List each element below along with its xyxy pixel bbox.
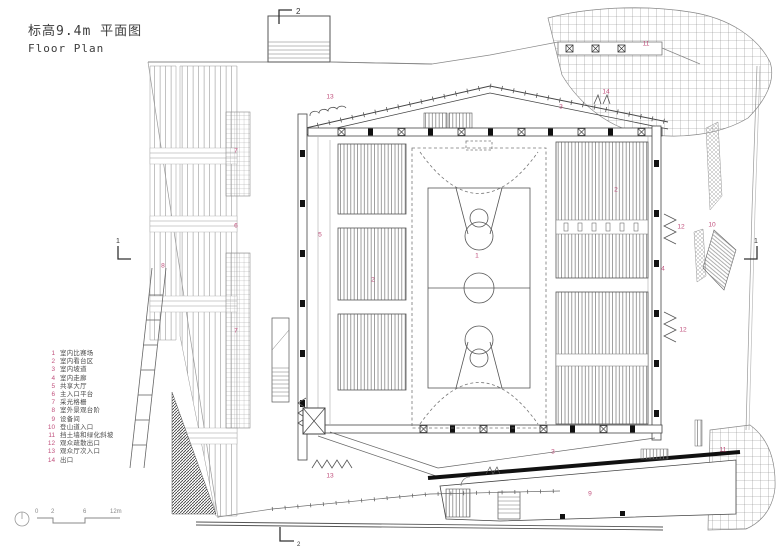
plan-area-label: 11: [720, 447, 727, 454]
legend-label: 室内坡道: [60, 366, 87, 374]
plan-area-label: 6: [234, 223, 238, 230]
plan-area-label: 5: [318, 232, 322, 239]
title-block: 标高9.4m 平面图 Floor Plan: [28, 20, 142, 55]
entry-stairs-north: [424, 113, 472, 128]
scale-tick-3: 12m: [110, 509, 122, 515]
page-title-en: Floor Plan: [28, 42, 142, 55]
basketball-court: [412, 141, 546, 428]
plan-area-label: 9: [588, 491, 592, 498]
plan-area-label: 11: [643, 41, 650, 48]
legend-item: 4室内走廊: [44, 375, 114, 383]
plan-area-label: 14: [602, 89, 609, 96]
scale-tick-2: 6: [83, 509, 87, 515]
plan-area-label: 3: [559, 104, 563, 111]
legend-label: 主入口平台: [60, 391, 93, 399]
section-marker-bottom: [280, 527, 294, 541]
legend-label: 设备间: [60, 416, 80, 424]
plan-area-label: 7: [234, 328, 238, 335]
plan-area-label: 2: [371, 277, 375, 284]
legend-item: 5共享大厅: [44, 383, 114, 391]
legend-num: 5: [44, 383, 55, 391]
legend-num: 1: [44, 350, 55, 358]
plan-area-label: 7: [234, 148, 238, 155]
exit-louver-upper: [664, 214, 676, 244]
scale-tick-0: 0: [35, 509, 39, 515]
legend-label: 观众厅次入口: [60, 448, 100, 456]
legend-label: 室内比赛场: [60, 350, 93, 358]
canopy-scallops-top: [310, 106, 346, 116]
legend-item: 3室内坡道: [44, 366, 114, 374]
exit-louver-lower: [664, 312, 676, 342]
section-number-left: 1: [116, 238, 120, 245]
legend-label: 共享大厅: [60, 383, 87, 391]
legend-num: 7: [44, 399, 55, 407]
plan-area-label: 13: [326, 94, 333, 101]
legend-num: 2: [44, 358, 55, 366]
floor-plan-page: 2 2 1 1 0 2 6 12m 标高9.4m 平面图 Floor Plan …: [0, 0, 780, 552]
landscape-steps: [130, 66, 237, 516]
legend-label: 室外景观台阶: [60, 407, 100, 415]
section-number-right: 1: [754, 238, 758, 245]
plan-area-label: 2: [614, 187, 618, 194]
legend-num: 6: [44, 391, 55, 399]
page-title-cn: 标高9.4m 平面图: [28, 20, 142, 39]
legend-item: 13观众厅次入口: [44, 448, 114, 456]
east-site-elements: [694, 122, 736, 290]
legend-item: 10登山道入口: [44, 424, 114, 432]
legend-label: 登山道入口: [60, 424, 93, 432]
legend-item: 8室外景观台阶: [44, 407, 114, 415]
section-number-top: 2: [296, 7, 301, 16]
legend-num: 12: [44, 440, 55, 448]
legend-item: 14出口: [44, 456, 114, 464]
legend-item: 6主入口平台: [44, 391, 114, 399]
floor-plan-drawing: 2 2 1 1 0 2 6 12m: [0, 0, 780, 552]
plan-area-label: 8: [161, 263, 165, 270]
legend-num: 8: [44, 407, 55, 415]
stair-tower: [268, 16, 330, 62]
scale-tick-1: 2: [51, 509, 55, 515]
plan-area-label: 3: [551, 449, 555, 456]
legend-num: 14: [44, 457, 55, 465]
legend-label: 挡土墙和绿化斜坡: [60, 432, 114, 440]
legend-num: 4: [44, 375, 55, 383]
scale-bar: 0 2 6 12m: [15, 509, 122, 526]
legend: 1室内比赛场 2室内看台区 3室内坡道 4室内走廊 5共享大厅 6主入口平台 7…: [44, 350, 114, 465]
plan-area-label: 13: [326, 473, 333, 480]
skylight-grille: [226, 112, 250, 428]
legend-num: 11: [44, 432, 55, 440]
legend-num: 13: [44, 448, 55, 456]
legend-item: 11挡土墙和绿化斜坡: [44, 432, 114, 440]
section-marker-left: [118, 246, 131, 259]
legend-label: 室内走廊: [60, 375, 87, 383]
legend-num: 9: [44, 416, 55, 424]
legend-num: 10: [44, 424, 55, 432]
legend-item: 9设备间: [44, 416, 114, 424]
plan-area-label: 1: [475, 253, 479, 260]
plan-area-label: 4: [661, 266, 665, 273]
plan-area-label: 12: [677, 224, 684, 231]
canopy-zigzag-bottom: [312, 460, 352, 468]
section-number-bottom: 2: [297, 542, 301, 548]
mountain-trail-ramp: [703, 230, 736, 290]
plan-area-label: 10: [708, 222, 715, 229]
legend-label: 出口: [60, 457, 73, 465]
legend-num: 3: [44, 366, 55, 374]
south-zone: [272, 420, 740, 521]
legend-label: 观众疏散出口: [60, 440, 100, 448]
legend-item: 1室内比赛场: [44, 350, 114, 358]
plan-area-label: 12: [679, 327, 686, 334]
